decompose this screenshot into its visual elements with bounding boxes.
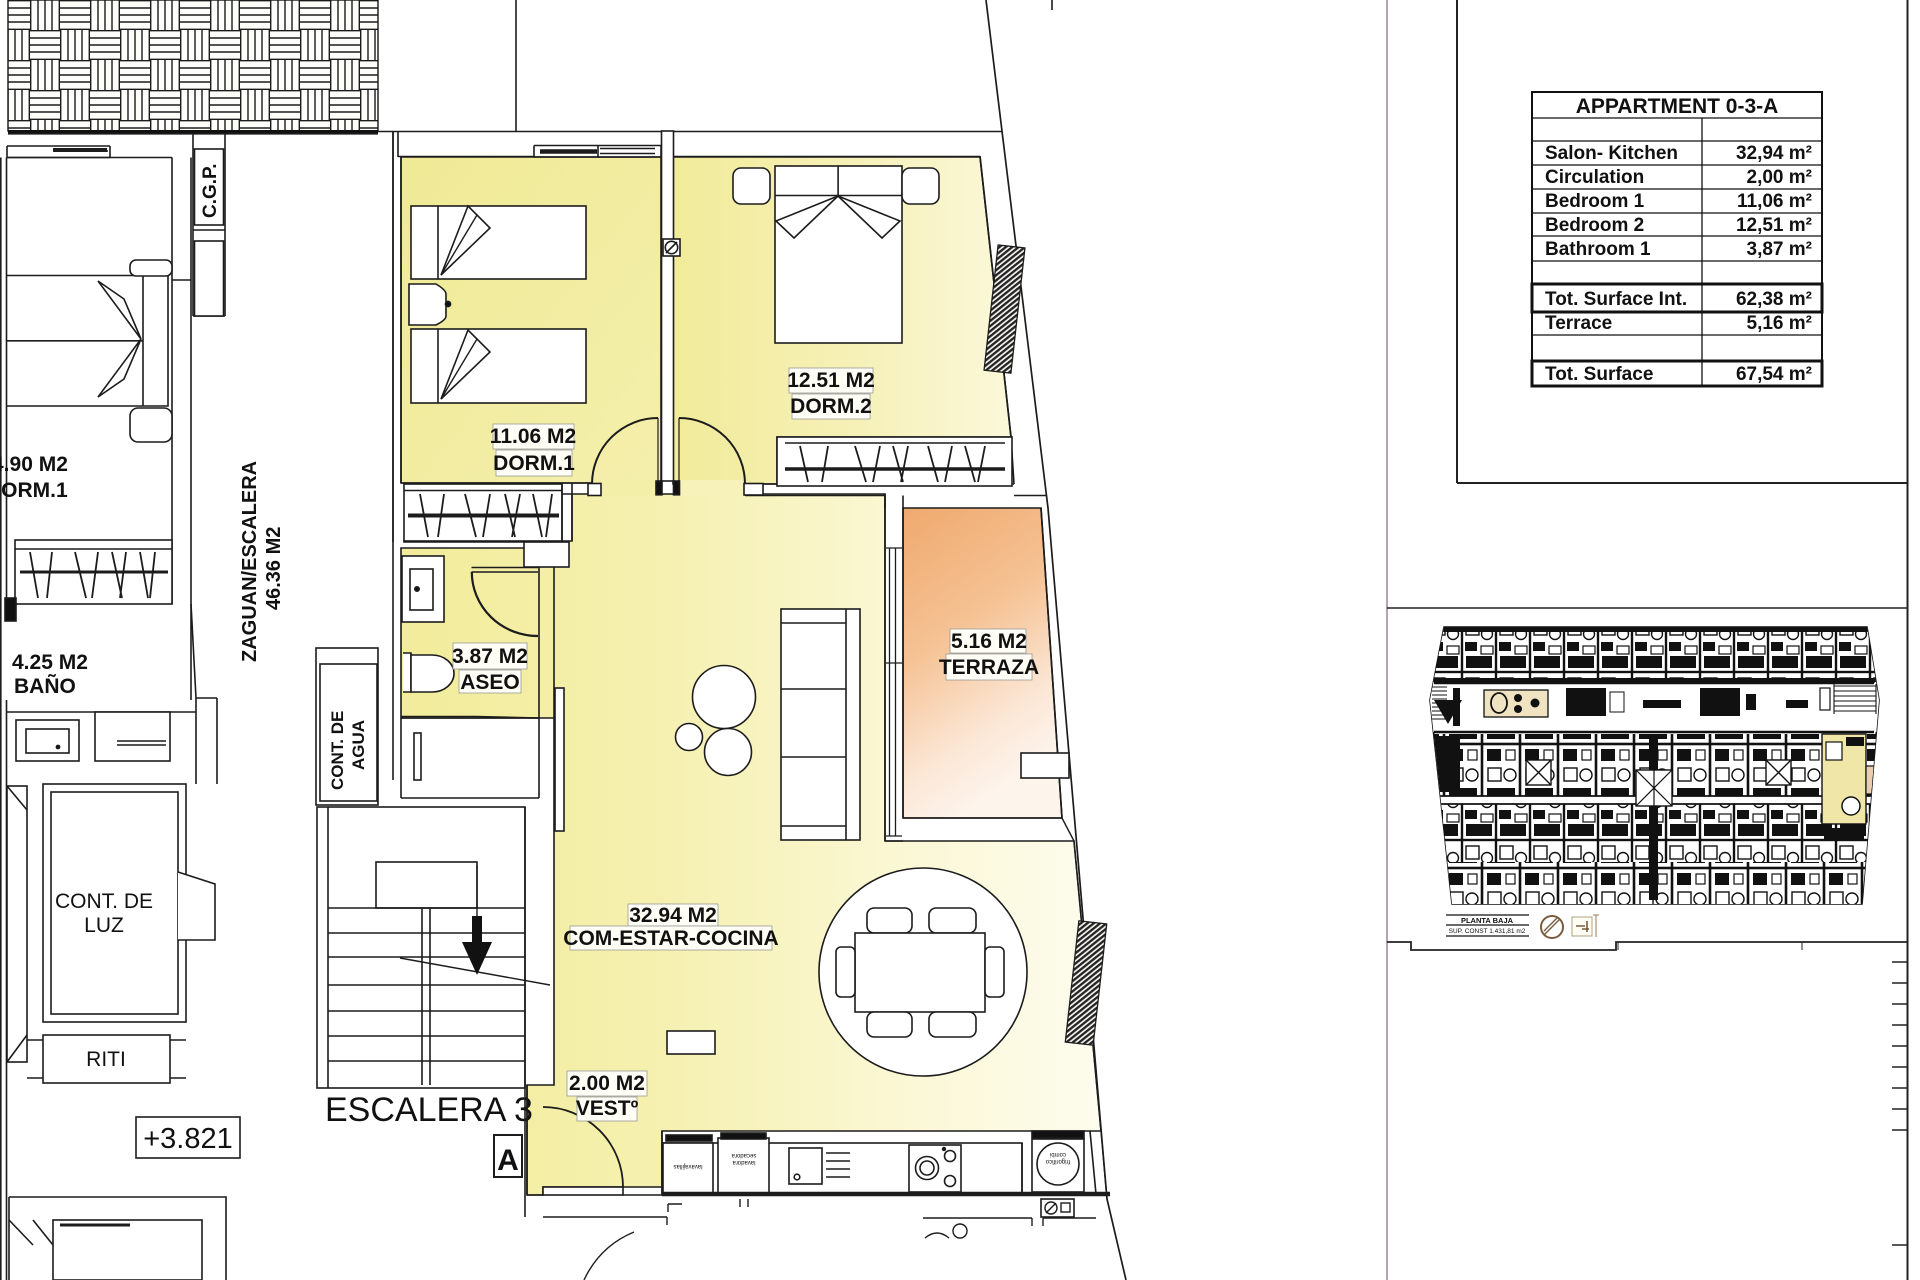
svg-text:3,87 m²: 3,87 m² [1747,239,1812,260]
svg-text:3.87 M2: 3.87 M2 [452,645,528,668]
svg-text:combi: combi [1050,1151,1066,1157]
svg-text:secadora: secadora [731,1152,756,1158]
svg-text:ESCALERA 3: ESCALERA 3 [325,1091,533,1129]
svg-text:C.G.P.: C.G.P. [200,163,221,218]
svg-text:Bedroom 1: Bedroom 1 [1545,191,1645,212]
svg-text:12,51 m²: 12,51 m² [1736,215,1812,236]
svg-text:4.25 M2: 4.25 M2 [12,651,88,674]
svg-text:LUZ: LUZ [84,914,124,937]
svg-text:RITI: RITI [86,1048,126,1071]
svg-text:11.06 M2: 11.06 M2 [490,425,576,448]
svg-text:PLANTA BAJA: PLANTA BAJA [1461,916,1514,925]
svg-text:CONT. DE: CONT. DE [55,890,153,913]
svg-text:BAÑO: BAÑO [14,675,76,698]
svg-text:DORM.2: DORM.2 [790,395,872,418]
svg-text:+3.821: +3.821 [143,1123,233,1155]
svg-text:frigorifico: frigorifico [1045,1158,1070,1164]
svg-text:CONT. DE: CONT. DE [328,711,347,790]
svg-text:32,94 m²: 32,94 m² [1736,143,1812,164]
svg-text:A: A [497,1144,519,1177]
svg-text:Tot. Surface: Tot. Surface [1545,364,1653,385]
svg-text:ASEO: ASEO [460,671,520,694]
svg-text:67,54 m²: 67,54 m² [1736,364,1812,385]
svg-text:Bathroom 1: Bathroom 1 [1545,239,1651,260]
svg-text:Salon- Kitchen: Salon- Kitchen [1545,143,1678,164]
svg-text:lavadora: lavadora [732,1159,756,1165]
svg-text:4.90 M2: 4.90 M2 [0,453,68,476]
svg-text:ZAGUAN/ESCALERA: ZAGUAN/ESCALERA [239,461,261,662]
svg-text:12.51 M2: 12.51 M2 [787,369,875,392]
svg-text:lavavajillas: lavavajillas [673,1163,702,1169]
svg-text:DORM.1: DORM.1 [493,452,575,475]
svg-text:TERRAZA: TERRAZA [939,656,1039,679]
svg-text:32.94 M2: 32.94 M2 [629,904,717,927]
svg-text:Tot. Surface Int.: Tot. Surface Int. [1545,289,1687,310]
svg-text:Terrace: Terrace [1545,313,1612,334]
svg-text:VESTº: VESTº [576,1097,639,1120]
svg-text:Bedroom 2: Bedroom 2 [1545,215,1644,236]
svg-text:2,00 m²: 2,00 m² [1747,167,1812,188]
svg-text:5,16 m²: 5,16 m² [1747,313,1812,334]
svg-text:DORM.1: DORM.1 [0,479,68,502]
svg-text:AGUA: AGUA [349,720,368,770]
svg-text:46.36 M2: 46.36 M2 [263,527,285,610]
svg-text:2.00 M2: 2.00 M2 [569,1072,645,1095]
svg-text:62,38 m²: 62,38 m² [1736,289,1812,310]
svg-text:Circulation: Circulation [1545,167,1644,188]
svg-text:11,06 m²: 11,06 m² [1737,191,1812,212]
svg-text:APPARTMENT 0-3-A: APPARTMENT 0-3-A [1576,95,1779,118]
svg-text:SUP. CONST 1.431,81 m2: SUP. CONST 1.431,81 m2 [1449,928,1526,935]
svg-text:COM-ESTAR-COCINA: COM-ESTAR-COCINA [563,927,778,950]
svg-text:5.16 M2: 5.16 M2 [951,630,1027,653]
